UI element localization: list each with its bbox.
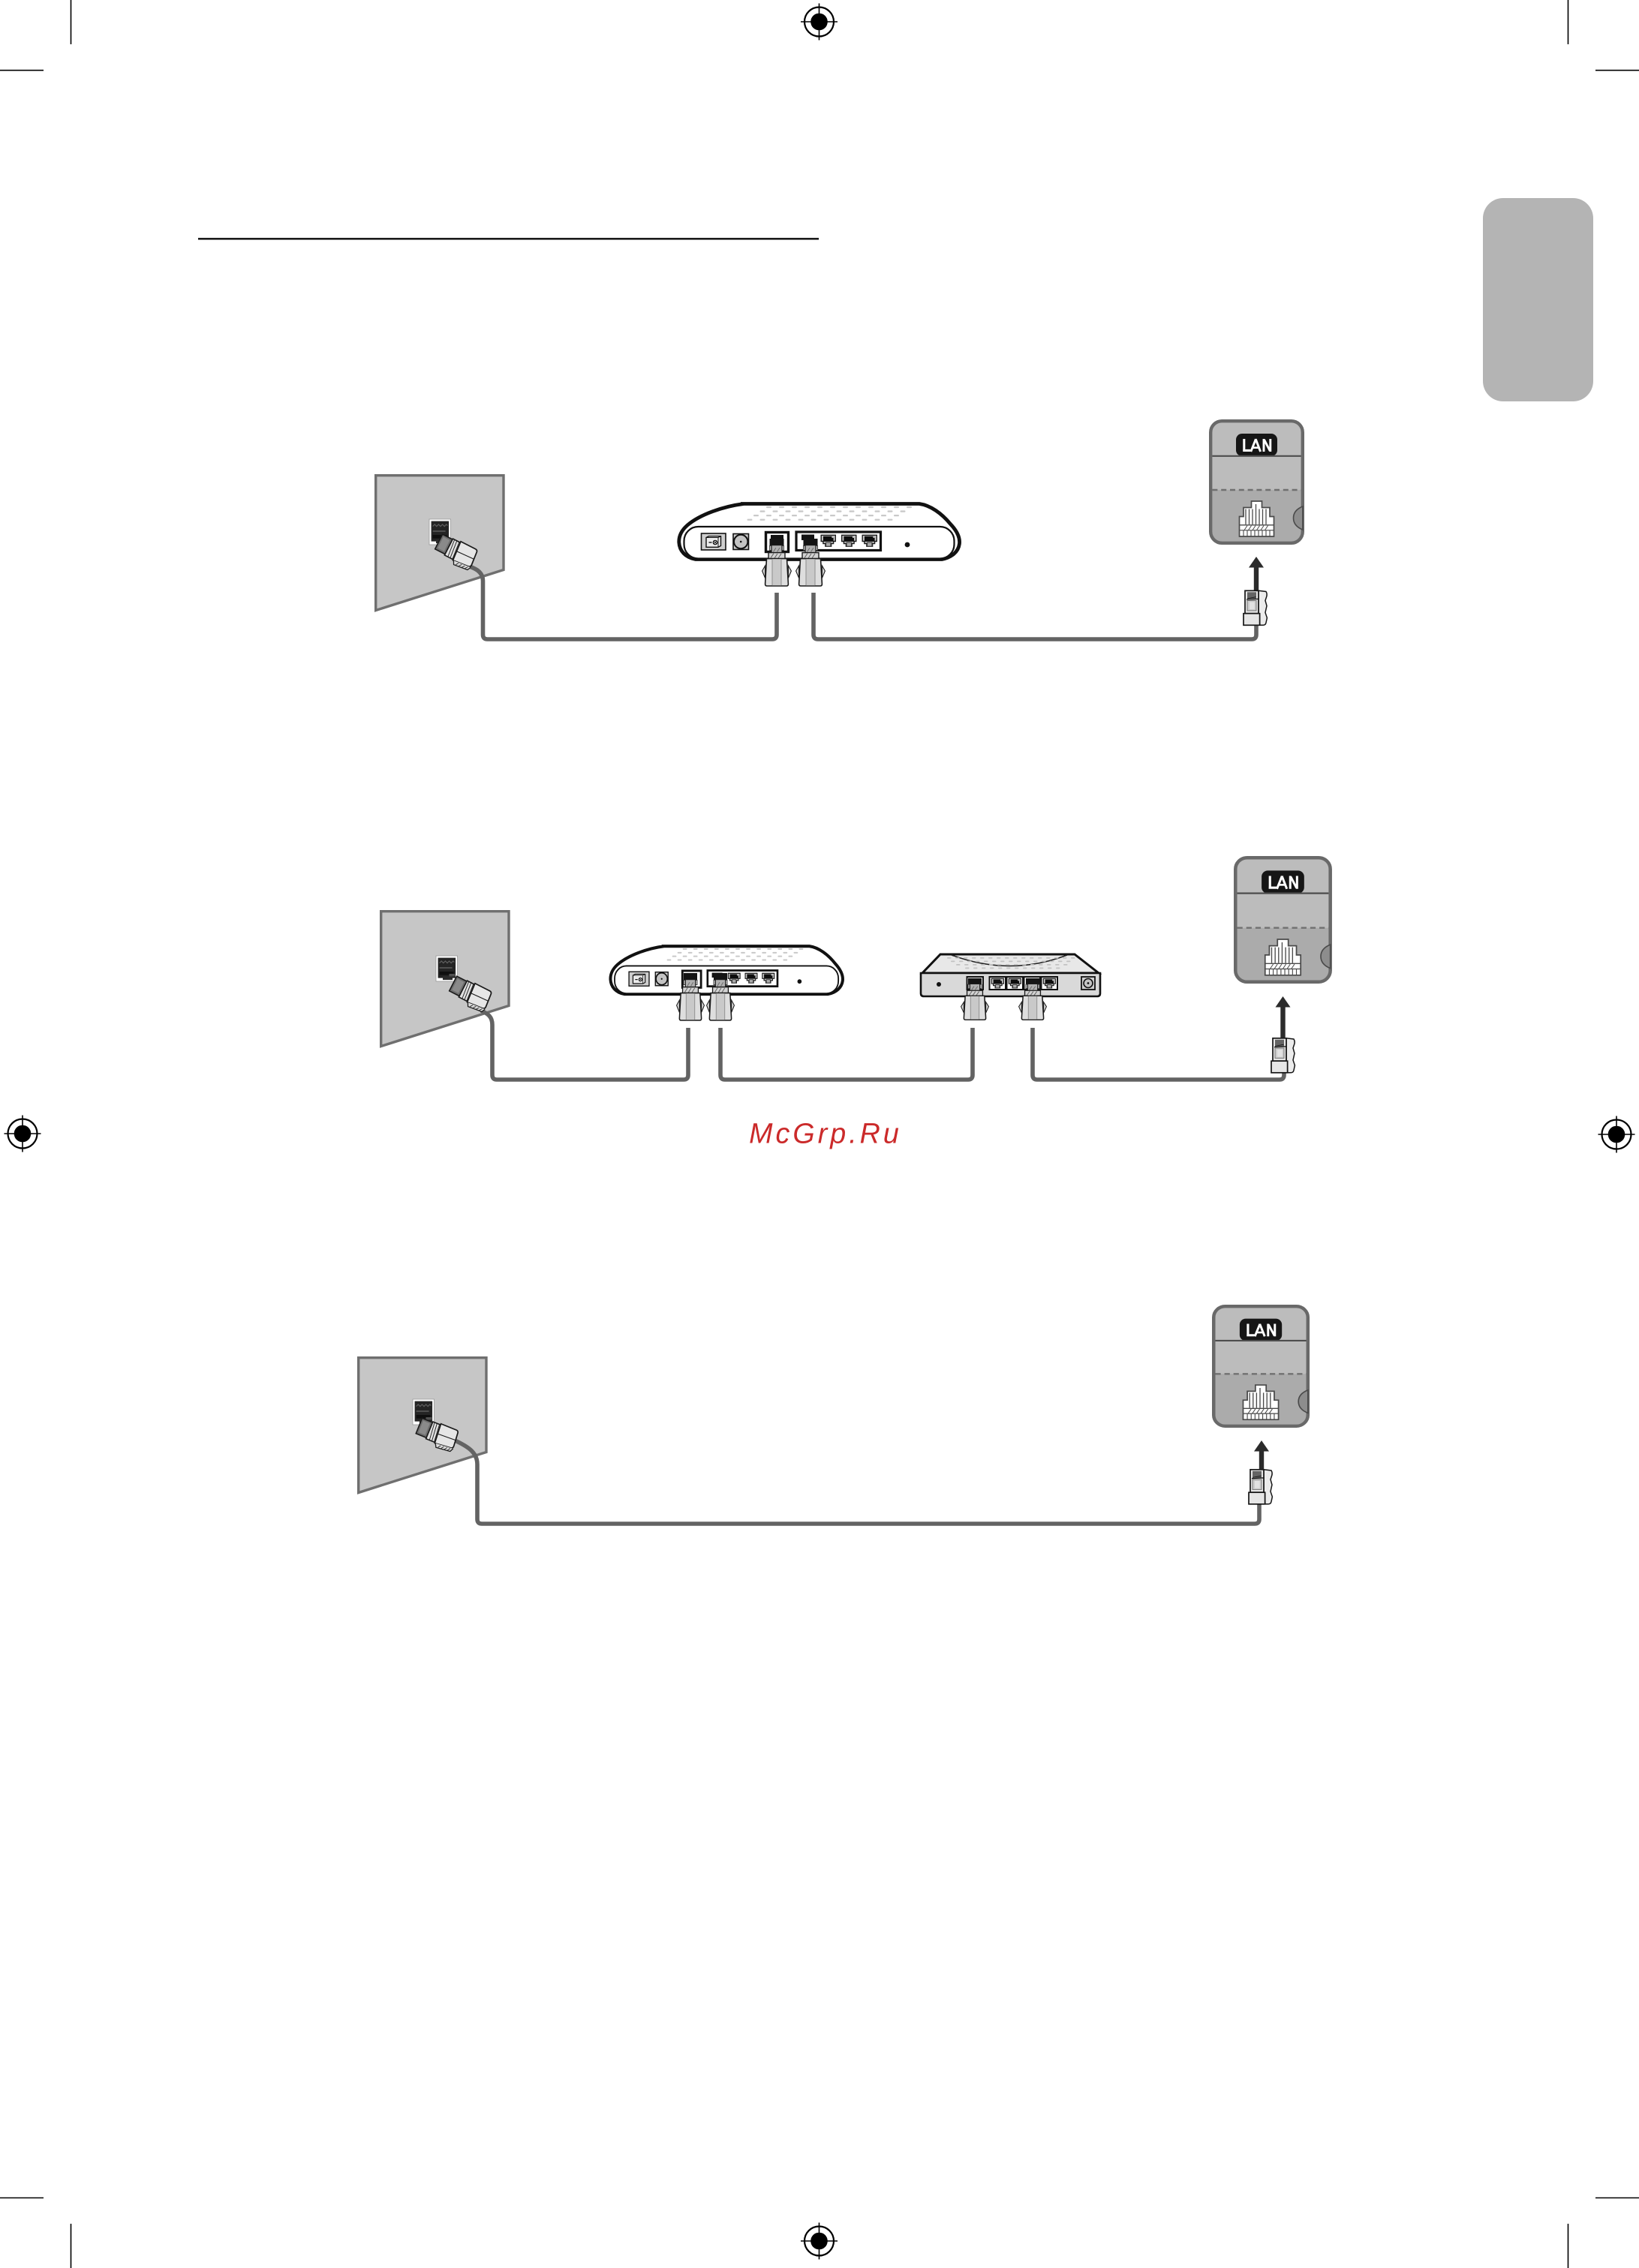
- svg-text:McGrp.Ru: McGrp.Ru: [749, 1118, 902, 1149]
